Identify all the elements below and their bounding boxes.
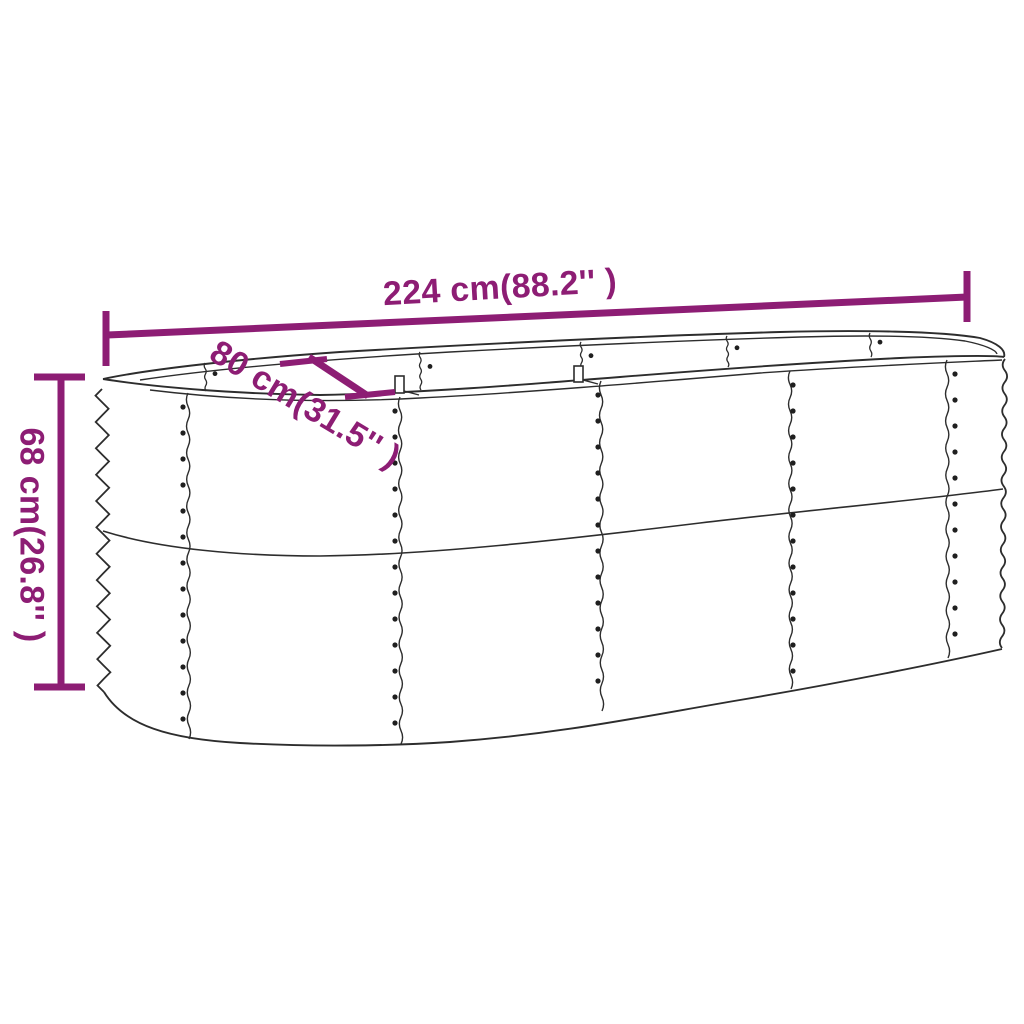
rivet-dot [952, 475, 957, 480]
rivet-dot [595, 418, 600, 423]
rivet-dot [595, 626, 600, 631]
rivet-dot [180, 456, 185, 461]
diagram-canvas: 224 cm(88.2'' ) 80 cm(31.5'' ) 68 cm(26.… [0, 0, 1024, 1024]
rivet-dot [180, 664, 185, 669]
rivet-dot [952, 423, 957, 428]
rivet-dot [595, 574, 600, 579]
rivet-dot [392, 590, 397, 595]
rivet-dot [952, 605, 957, 610]
rivet-dot [878, 340, 883, 345]
rivet-dot [790, 434, 795, 439]
planter-drawing [0, 0, 1024, 1024]
rivet-dot [790, 538, 795, 543]
rivet-dot [595, 522, 600, 527]
rivet-dot [790, 512, 795, 517]
rivet-dot [595, 678, 600, 683]
rivet-dot [595, 496, 600, 501]
rivet-dot [790, 382, 795, 387]
rivet-dot [392, 486, 397, 491]
rivet-dot [180, 690, 185, 695]
rivet-dot [595, 600, 600, 605]
front-wall [103, 356, 1004, 746]
rivet-dot [180, 404, 185, 409]
rivet-dot [952, 631, 957, 636]
rivet-dot [428, 364, 433, 369]
rivet-dot [595, 392, 600, 397]
rivet-dot [952, 579, 957, 584]
rivet-dot [952, 553, 957, 558]
rivet-dot [392, 538, 397, 543]
rivet-dot [392, 694, 397, 699]
rivet-dot [392, 408, 397, 413]
rivet-dot [595, 470, 600, 475]
rivet-dot [790, 590, 795, 595]
rivet-dot [392, 720, 397, 725]
rivet-dot [180, 716, 185, 721]
rivet-dot [180, 560, 185, 565]
rim-clip-right [574, 366, 583, 382]
rivet-dot [180, 534, 185, 539]
rivet-dot [392, 668, 397, 673]
garden-bed-outline [96, 331, 1008, 745]
rivet-dot [392, 642, 397, 647]
rivet-dot [180, 586, 185, 591]
rivet-dot [952, 501, 957, 506]
rivet-dot [790, 486, 795, 491]
rivet-dot [595, 548, 600, 553]
rivet-dot [392, 564, 397, 569]
rivet-dot [952, 527, 957, 532]
rivet-dot [790, 564, 795, 569]
rivet-dot [790, 642, 795, 647]
rim-clip-left [395, 376, 404, 393]
rivet-dot [790, 460, 795, 465]
rivet-dot [952, 449, 957, 454]
height-dimension-label: 68 cm(26.8'' ) [12, 427, 51, 642]
rivet-dot [735, 345, 740, 350]
rivet-dot [180, 482, 185, 487]
rivet-dot [595, 652, 600, 657]
rivet-dot [952, 397, 957, 402]
rivet-dot [595, 444, 600, 449]
rivet-dot [790, 408, 795, 413]
rivet-dot [392, 616, 397, 621]
rivet-dot [589, 353, 594, 358]
rivet-dot [180, 508, 185, 513]
rivet-dot [392, 512, 397, 517]
rivet-dot [180, 430, 185, 435]
rivet-dot [180, 612, 185, 617]
rivet-dot [180, 638, 185, 643]
rivet-dot [790, 616, 795, 621]
rivet-dot [790, 668, 795, 673]
rivet-dot [952, 371, 957, 376]
